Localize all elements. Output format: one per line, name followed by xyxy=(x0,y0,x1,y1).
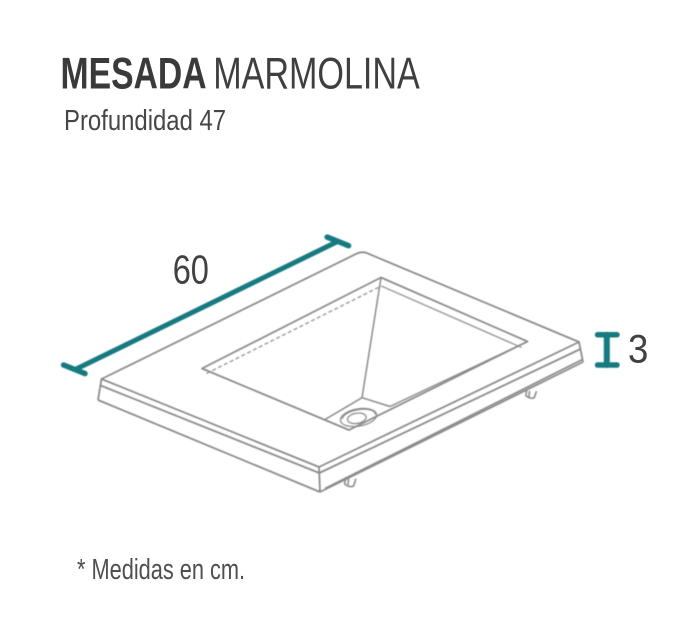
svg-text:60: 60 xyxy=(173,247,209,292)
svg-text:* Medidas en cm.: * Medidas en cm. xyxy=(77,554,245,586)
svg-text:Profundidad 47: Profundidad 47 xyxy=(64,104,226,137)
svg-text:MESADA: MESADA xyxy=(61,49,207,99)
svg-text:3: 3 xyxy=(628,327,648,372)
svg-text:MARMOLINA: MARMOLINA xyxy=(213,49,420,98)
